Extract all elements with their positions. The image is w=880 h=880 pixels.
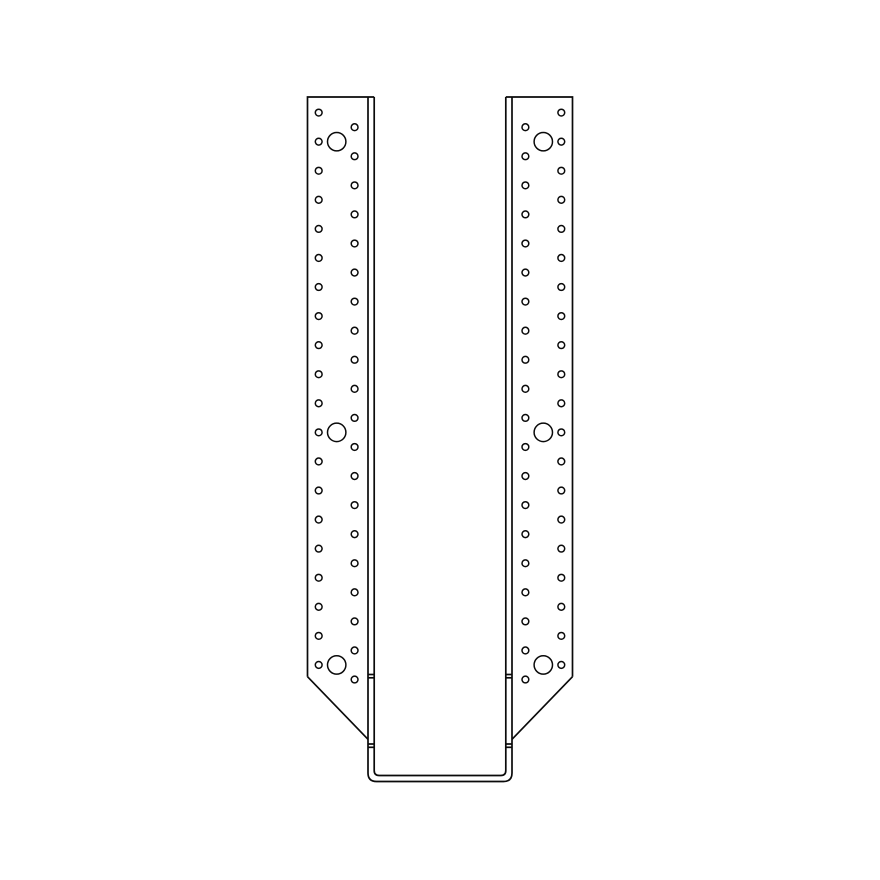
left-strap bbox=[308, 97, 375, 747]
joist-hanger-diagram bbox=[0, 0, 880, 880]
nail-hole bbox=[351, 240, 358, 247]
nail-hole bbox=[315, 167, 322, 174]
nail-hole bbox=[522, 269, 529, 276]
nail-hole bbox=[351, 444, 358, 451]
nail-hole bbox=[558, 371, 565, 378]
nail-hole bbox=[558, 342, 565, 349]
nail-hole bbox=[315, 342, 322, 349]
nail-hole bbox=[522, 415, 529, 422]
nail-hole bbox=[522, 240, 529, 247]
nail-hole bbox=[522, 502, 529, 509]
nail-hole bbox=[558, 574, 565, 581]
nail-hole bbox=[522, 676, 529, 683]
nail-hole bbox=[522, 153, 529, 160]
nail-hole bbox=[522, 560, 529, 567]
nail-hole bbox=[351, 327, 358, 334]
nail-hole bbox=[315, 138, 322, 145]
bolt-hole bbox=[534, 423, 552, 441]
nail-hole bbox=[558, 313, 565, 320]
nail-hole bbox=[315, 255, 322, 262]
nail-hole bbox=[351, 298, 358, 305]
nail-hole bbox=[351, 618, 358, 625]
nail-hole bbox=[558, 138, 565, 145]
nail-hole bbox=[558, 255, 565, 262]
nail-hole bbox=[522, 618, 529, 625]
nail-hole bbox=[315, 284, 322, 291]
nail-hole bbox=[558, 429, 565, 436]
nail-hole bbox=[522, 124, 529, 131]
nail-hole bbox=[522, 327, 529, 334]
nail-hole bbox=[522, 531, 529, 538]
nail-hole bbox=[522, 444, 529, 451]
nail-hole bbox=[351, 269, 358, 276]
nail-hole bbox=[315, 487, 322, 494]
nail-hole bbox=[558, 632, 565, 639]
nail-hole bbox=[315, 109, 322, 116]
right-strap bbox=[506, 97, 573, 747]
seat-outer-contour bbox=[368, 97, 512, 782]
nail-hole bbox=[558, 487, 565, 494]
nail-hole bbox=[558, 662, 565, 669]
nail-hole bbox=[522, 182, 529, 189]
nail-hole bbox=[558, 284, 565, 291]
strap-outline bbox=[308, 97, 375, 677]
nail-hole bbox=[315, 196, 322, 203]
nail-hole bbox=[522, 385, 529, 392]
nail-hole bbox=[351, 211, 358, 218]
nail-hole bbox=[351, 153, 358, 160]
nail-hole bbox=[351, 560, 358, 567]
nail-hole bbox=[558, 196, 565, 203]
nail-hole bbox=[351, 124, 358, 131]
nail-hole bbox=[315, 371, 322, 378]
nail-hole bbox=[522, 647, 529, 654]
drawing-canvas bbox=[0, 0, 880, 880]
nail-hole bbox=[558, 603, 565, 610]
nail-hole bbox=[522, 589, 529, 596]
bolt-hole bbox=[534, 132, 552, 150]
nail-hole bbox=[558, 109, 565, 116]
nail-hole bbox=[351, 502, 358, 509]
nail-hole bbox=[315, 313, 322, 320]
nail-hole bbox=[315, 516, 322, 523]
seat-channel bbox=[368, 97, 512, 782]
nail-hole bbox=[315, 545, 322, 552]
nail-hole bbox=[315, 400, 322, 407]
strap-bevel-edge bbox=[512, 677, 573, 740]
nail-hole bbox=[522, 356, 529, 363]
nail-hole bbox=[315, 225, 322, 232]
nail-hole bbox=[315, 574, 322, 581]
nail-hole bbox=[351, 182, 358, 189]
nail-hole bbox=[351, 356, 358, 363]
seat-inner-contour bbox=[374, 97, 506, 776]
nail-hole bbox=[558, 545, 565, 552]
bolt-hole bbox=[534, 656, 552, 674]
nail-hole bbox=[558, 400, 565, 407]
strap-bevel-edge bbox=[308, 677, 369, 740]
nail-hole bbox=[315, 458, 322, 465]
nail-hole bbox=[351, 473, 358, 480]
nail-hole bbox=[315, 632, 322, 639]
nail-hole bbox=[558, 225, 565, 232]
nail-hole bbox=[351, 415, 358, 422]
bolt-hole bbox=[328, 423, 346, 441]
strap-outline bbox=[506, 97, 573, 677]
nail-hole bbox=[351, 676, 358, 683]
nail-hole bbox=[315, 429, 322, 436]
nail-hole bbox=[522, 298, 529, 305]
nail-hole bbox=[522, 473, 529, 480]
nail-hole bbox=[558, 516, 565, 523]
nail-hole bbox=[351, 531, 358, 538]
nail-hole bbox=[558, 167, 565, 174]
bolt-hole bbox=[328, 132, 346, 150]
nail-hole bbox=[351, 589, 358, 596]
nail-hole bbox=[558, 458, 565, 465]
nail-hole bbox=[315, 603, 322, 610]
nail-hole bbox=[351, 647, 358, 654]
nail-hole bbox=[315, 662, 322, 669]
nail-hole bbox=[522, 211, 529, 218]
bolt-hole bbox=[328, 656, 346, 674]
nail-hole bbox=[351, 385, 358, 392]
